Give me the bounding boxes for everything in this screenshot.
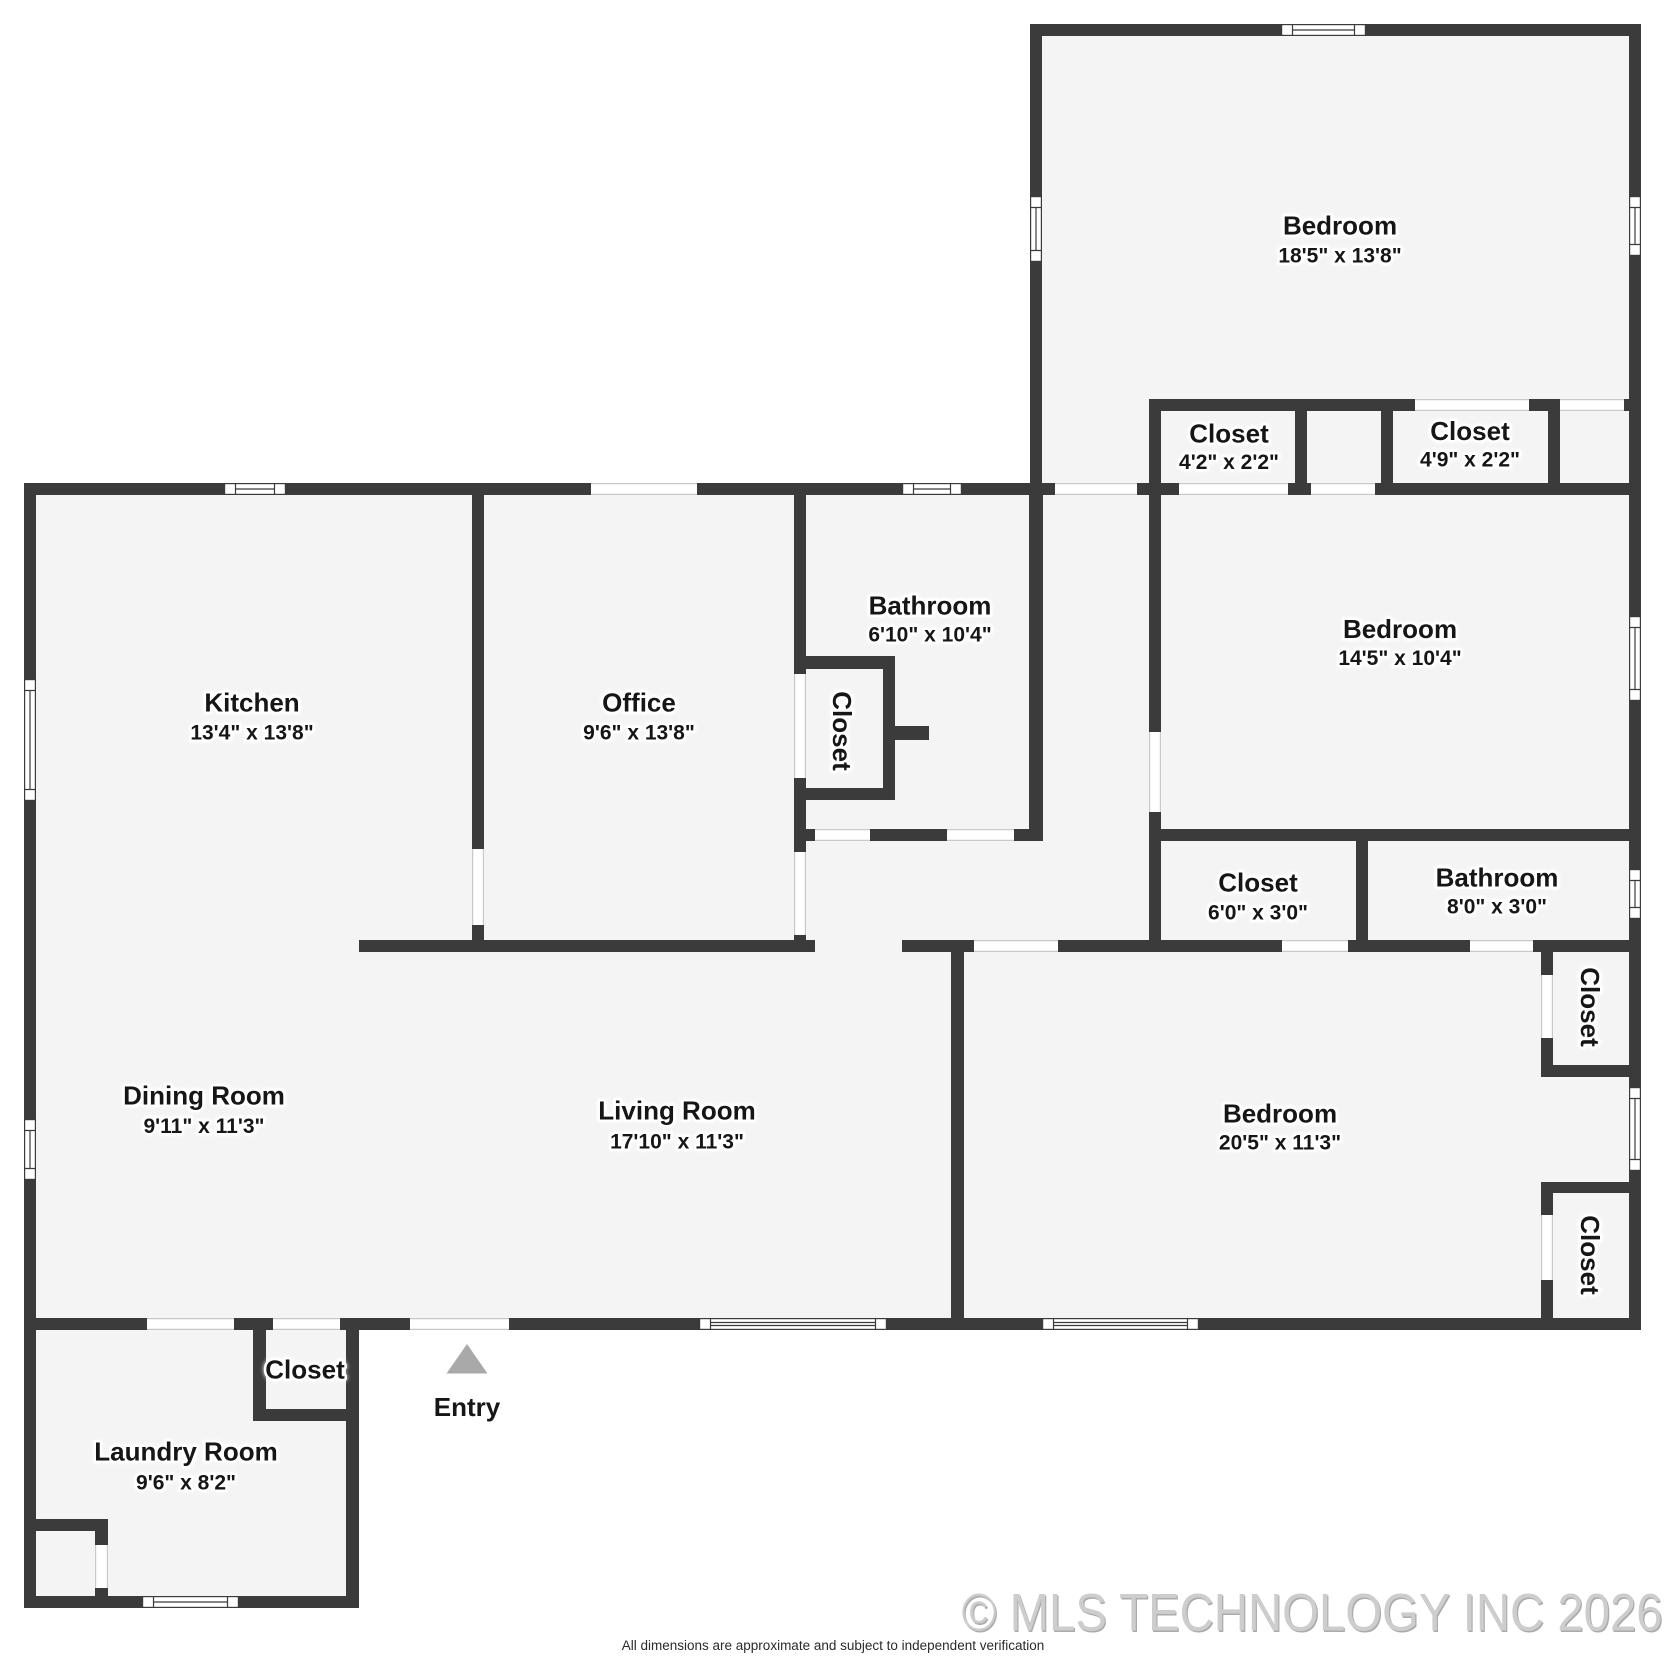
svg-text:Closet: Closet — [1575, 1215, 1605, 1295]
svg-text:Closet: Closet — [1189, 419, 1269, 449]
svg-text:All dimensions are approximate: All dimensions are approximate and subje… — [622, 1638, 1045, 1653]
svg-text:6'0" x 3'0": 6'0" x 3'0" — [1208, 902, 1308, 925]
svg-text:Closet: Closet — [827, 691, 857, 771]
svg-text:Office: Office — [602, 688, 676, 718]
svg-text:Bathroom: Bathroom — [869, 591, 992, 621]
svg-text:6'10" x 10'4": 6'10" x 10'4" — [868, 624, 991, 647]
svg-text:Laundry Room: Laundry Room — [94, 1437, 277, 1467]
svg-text:9'6" x 13'8": 9'6" x 13'8" — [583, 722, 695, 745]
svg-text:20'5" x 11'3": 20'5" x 11'3" — [1219, 1132, 1341, 1155]
svg-text:18'5" x 13'8": 18'5" x 13'8" — [1278, 245, 1401, 268]
svg-text:4'2" x 2'2": 4'2" x 2'2" — [1179, 451, 1279, 474]
svg-text:14'5" x 10'4": 14'5" x 10'4" — [1338, 647, 1461, 670]
svg-text:Bedroom: Bedroom — [1223, 1099, 1337, 1129]
svg-text:Living Room: Living Room — [598, 1096, 755, 1126]
svg-text:Closet: Closet — [1575, 967, 1605, 1047]
svg-text:17'10" x 11'3": 17'10" x 11'3" — [610, 1131, 744, 1154]
svg-text:8'0" x 3'0": 8'0" x 3'0" — [1447, 896, 1547, 919]
svg-text:9'6" x 8'2": 9'6" x 8'2" — [136, 1472, 236, 1495]
svg-text:Bedroom: Bedroom — [1343, 614, 1457, 644]
svg-text:© MLS TECHNOLOGY INC 2026: © MLS TECHNOLOGY INC 2026 — [962, 1583, 1663, 1642]
svg-text:Closet: Closet — [265, 1355, 345, 1385]
svg-text:Closet: Closet — [1430, 416, 1510, 446]
svg-text:Entry: Entry — [434, 1392, 501, 1422]
svg-text:13'4" x 13'8": 13'4" x 13'8" — [190, 722, 313, 745]
svg-text:Closet: Closet — [1218, 868, 1298, 898]
svg-text:9'11" x 11'3": 9'11" x 11'3" — [143, 1115, 264, 1138]
svg-text:Bathroom: Bathroom — [1436, 863, 1559, 893]
svg-text:Kitchen: Kitchen — [204, 688, 299, 718]
svg-text:Bedroom: Bedroom — [1283, 211, 1397, 241]
svg-text:4'9" x 2'2": 4'9" x 2'2" — [1420, 449, 1520, 472]
svg-text:Dining Room: Dining Room — [123, 1081, 285, 1111]
